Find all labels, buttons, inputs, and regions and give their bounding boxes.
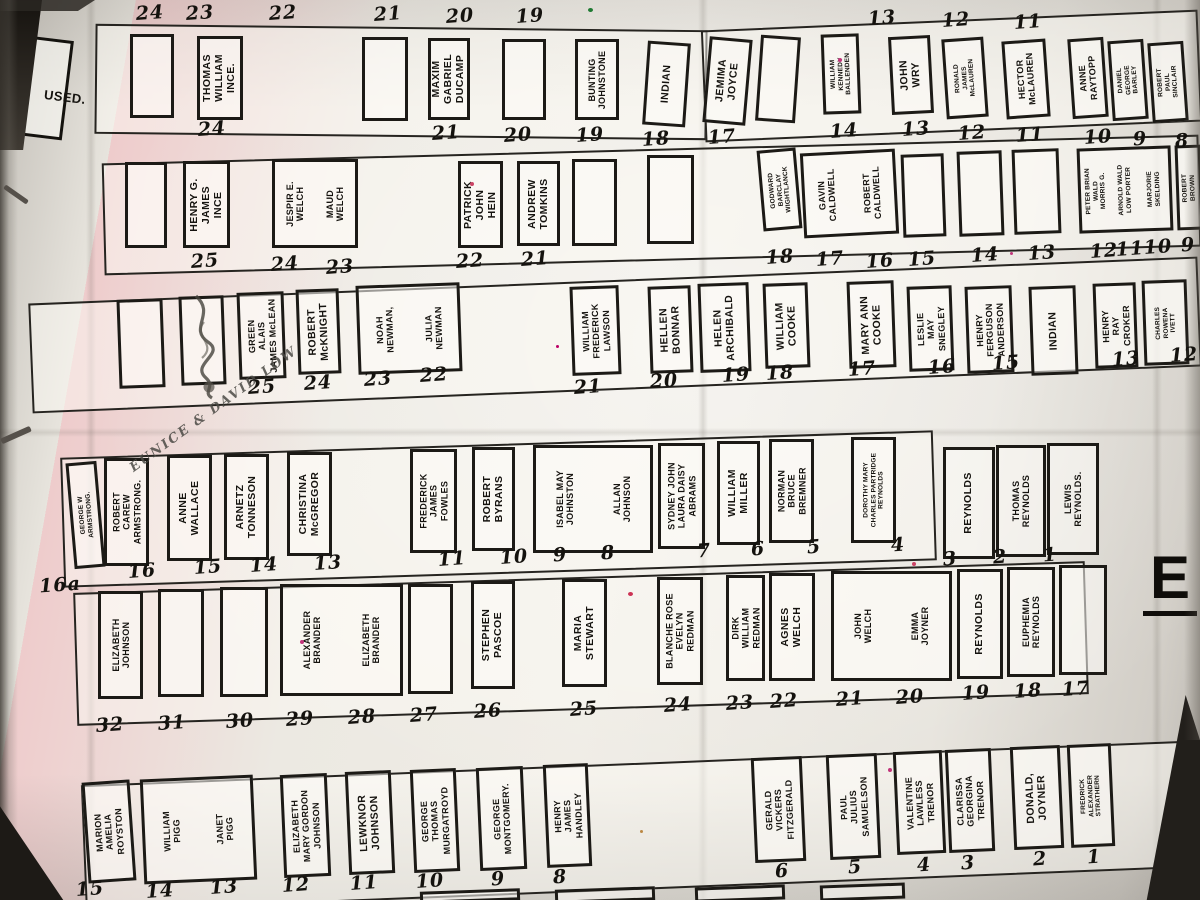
- speck: [300, 640, 304, 644]
- plot-number: 29: [285, 707, 315, 731]
- plot-name-line: TRENOR: [974, 780, 986, 820]
- plot-name: DOROTHY MARYCHARLES PARTRIDGEREYNOLDS: [862, 453, 885, 527]
- plot-name-line: ROBERT: [111, 492, 121, 532]
- plot-name: MARJORIESKELDING: [1146, 170, 1163, 206]
- plot-number: 21: [373, 2, 403, 26]
- plot-john-wry: JOHNWRY: [888, 35, 934, 115]
- plot-name: VALENTINELAWLESSTRENOR: [903, 775, 936, 829]
- plot-name: WILLIAMCOOKE: [774, 301, 800, 350]
- plot-number: 19: [575, 123, 605, 147]
- plot-name-line: FITZGERALD: [782, 779, 795, 839]
- plot-robert-mcknight: ROBERTMcKNIGHT: [296, 288, 342, 374]
- plot-name-line: LAWSON: [600, 309, 612, 351]
- plot-name-line: INDIAN: [1047, 311, 1060, 350]
- plot-name-line: McLAUREN: [968, 58, 978, 96]
- plot-name-line: FOWLES: [439, 481, 449, 521]
- plot-name-rotator: VALENTINELAWLESSTRENOR: [903, 775, 936, 829]
- plot-name-line: JOHNSON: [121, 622, 131, 669]
- plot-number: 19: [961, 681, 991, 705]
- plot-name-line: DOROTHY MARY: [862, 462, 870, 518]
- plot-name: DONALD,JOYNER: [1024, 772, 1050, 824]
- plot-number: 9: [490, 868, 506, 891]
- plot-name-rotator: HECTORMcLAUREN: [1014, 52, 1038, 106]
- plot-empty: [572, 159, 617, 246]
- plot-name-line: WELCH: [295, 186, 305, 221]
- plot-alexander-brander-elizabeth-brander: ALEXANDERBRANDERELIZABETHBRANDER: [280, 584, 403, 696]
- plot-name-rotator: MARIONAMELIAROYSTON: [92, 807, 126, 855]
- plot-name: THOMASREYNOLDS: [1011, 475, 1032, 527]
- plot-number: 14: [249, 553, 279, 577]
- speck: [640, 830, 643, 833]
- plot-name-rotator: NORMANBRUCEBREMNER: [776, 467, 807, 515]
- plot-name: SYDNEY JOHNLAURA DAISYABRAMS: [666, 462, 697, 530]
- plot-name-rotator: EUPHEMIAREYNOLDS: [1021, 596, 1042, 648]
- plot-number: 25: [569, 697, 599, 721]
- plot-number: 9: [1180, 234, 1196, 257]
- plot-name-line: WALLACE: [190, 481, 202, 536]
- plot-number: 8: [600, 542, 616, 565]
- plot-number: 10: [415, 869, 445, 893]
- plot-number: 31: [157, 711, 187, 735]
- plot-number: 14: [829, 119, 859, 143]
- plot-name-rotator: DOROTHY MARYCHARLES PARTRIDGEREYNOLDS: [862, 453, 885, 527]
- plot-number: 19: [515, 4, 545, 28]
- plot-jemima-joyce: JEMIMAJOYCE: [702, 36, 752, 125]
- plot-name: MAXIMGABRIELDUCAMP: [431, 54, 467, 104]
- plot-name: GODWARDBARCLAYWIGHTLANCK: [766, 165, 793, 213]
- plot-henry-james-handley: HENRYJAMESHANDLEY: [543, 763, 592, 868]
- plot-number: 17: [1061, 677, 1091, 701]
- plot-name-rotator: MAXIMGABRIELDUCAMP: [431, 54, 467, 104]
- plot-name-rotator: HELLENBONNAR: [658, 305, 684, 354]
- used-label-rotator: USED.: [43, 88, 86, 108]
- plot-dirk-william-redman: DIRKWILLIAMREDMAN: [726, 575, 765, 681]
- plot-name-line: JAMES: [201, 185, 213, 223]
- plot-name-line: RAYTOPP: [1086, 55, 1099, 100]
- plot-name-rotator: WILLIAMFREDERICKLAWSON: [579, 302, 612, 358]
- plot-name-line: REYNOLDS: [963, 472, 975, 534]
- shadow-right-edge: [1184, 0, 1200, 740]
- plot-name-line: JOHNSON: [369, 795, 383, 850]
- plot-number: 15: [907, 247, 937, 271]
- plot-number: 16: [865, 249, 895, 273]
- plot-bunting-johnstone: BUNTINGJOHNSTONE: [575, 39, 619, 120]
- plot-name-line: INDIAN: [659, 64, 674, 103]
- plot-name-rotator: CLARISSAGEORGINATRENOR: [954, 774, 987, 827]
- speck: [1010, 252, 1013, 255]
- plot-name-line: BRANDER: [371, 616, 381, 663]
- plot-number: 15: [991, 351, 1021, 375]
- plot-name: ROBERTBYRANS: [482, 476, 506, 523]
- plot-arnetz-tonneson: ARNETZTONNESON: [224, 454, 269, 560]
- plot-number: 23: [325, 255, 355, 279]
- plot-name-line: BLANCHE ROSE: [665, 593, 675, 669]
- plot-daniel-george-barley: DANIELGEORGEBARLEY: [1107, 39, 1148, 121]
- plot-name-rotator: JOHNWELCH: [853, 609, 874, 644]
- plot-name-line: REYNOLDS: [877, 471, 885, 509]
- plot-name: ROBERTCALDWELL: [860, 165, 883, 219]
- plot-empty: [158, 589, 204, 697]
- plot-number: 2: [992, 546, 1008, 569]
- plot-name-rotator: FREDRICKALEXANDERSTRATHERN: [1079, 774, 1104, 817]
- plot-name-line: TRENOR: [924, 782, 936, 822]
- plot-name-line: FREDERICK: [418, 473, 428, 528]
- plot-name-line: COOKE: [871, 304, 884, 345]
- plot-name-line: ARCHIBALD: [723, 294, 737, 360]
- plot-name-line: JULIUS: [848, 789, 860, 823]
- plot-name-line: CHRISTINA: [298, 474, 310, 535]
- plot-maxim-gabriel-ducamp: MAXIMGABRIELDUCAMP: [428, 38, 470, 120]
- plot-name-rotator: SYDNEY JOHNLAURA DAISYABRAMS: [666, 462, 697, 530]
- plot-name-line: NEWMAN: [433, 306, 445, 350]
- plot-name-rotator: ALLANJOHNSON: [611, 476, 632, 523]
- plot-name-rotator: RONALDJAMESMcLAUREN: [952, 58, 978, 97]
- plot-number: 6: [774, 860, 790, 883]
- plot-name: JULIANEWMAN: [422, 306, 444, 350]
- plot-name-rotator: GERALDVICKERSFITZGERALD: [762, 779, 795, 840]
- plot-lewis-reynolds: LEWISREYNOLDS.: [1047, 443, 1099, 555]
- plot-norman-bruce-bremner: NORMANBRUCEBREMNER: [769, 439, 814, 543]
- plot-number: 11: [1015, 123, 1045, 147]
- plot-name-line: MILLER: [739, 472, 751, 513]
- plot-name-rotator: GEORGETHOMASMURGATROYD: [418, 786, 452, 855]
- plot-number: 27: [409, 703, 439, 727]
- plot-name-rotator: HENRYJAMESHANDLEY: [551, 792, 584, 839]
- cemetery-plot-map-photo: THOMASWILLIAMINCE.MAXIMGABRIELDUCAMPBUNT…: [0, 0, 1200, 900]
- plot-name: BUNTINGJOHNSTONE: [587, 50, 608, 109]
- plot-empty: [408, 584, 453, 694]
- plot-number: 3: [960, 852, 976, 875]
- plot-name-rotator: LEWKNORJOHNSON: [357, 793, 383, 851]
- plot-clarissa-georgina-trenor: CLARISSAGEORGINATRENOR: [945, 748, 995, 853]
- plot-name-rotator: GEORGEMONTGOMERY.: [490, 783, 514, 855]
- speck: [912, 562, 916, 566]
- plot-name-line: EMMA: [910, 612, 920, 641]
- speck: [588, 8, 593, 12]
- plot-william-pigg-janet-pigg: WILLIAMPIGGJANETPIGG: [140, 775, 257, 885]
- plot-name-line: WILLIAM: [740, 608, 750, 649]
- plot-name: GEORGE WARMSTRONG.: [76, 491, 95, 539]
- map-layer: THOMASWILLIAMINCE.MAXIMGABRIELDUCAMPBUNT…: [0, 0, 1200, 900]
- plot-number: 22: [419, 363, 449, 387]
- plot-indian: INDIAN: [1028, 285, 1078, 376]
- plot-name-line: WILLIAM: [161, 810, 173, 851]
- plot-name-line: CAREW: [121, 494, 131, 530]
- plot-william-cooke: WILLIAMCOOKE: [763, 282, 811, 369]
- plot-number: 13: [1027, 241, 1057, 265]
- speck: [556, 345, 559, 348]
- plot-name-line: DUCAMP: [455, 55, 467, 103]
- plot-name-line: GREEN: [246, 319, 257, 353]
- plot-name-rotator: REYNOLDS: [963, 472, 975, 534]
- plot-name-line: SNEGLEY: [935, 305, 947, 350]
- plot-name-line: BYRANS: [494, 476, 506, 523]
- plot-name-line: IVETT: [1169, 312, 1177, 332]
- plot-number: 16: [927, 355, 957, 379]
- plot-name: DIRKWILLIAMREDMAN: [730, 607, 761, 648]
- used-label: USED.: [43, 88, 86, 108]
- plot-name-line: REYNOLDS: [974, 593, 986, 655]
- plot-name: BLANCHE ROSEEVELYNREDMAN: [665, 593, 696, 669]
- plot-name: CHARLESROWENAIVETT: [1153, 306, 1177, 340]
- plot-name: REYNOLDS: [963, 472, 975, 534]
- plot-number: 20: [445, 4, 475, 28]
- plot-name-line: JOHNSTON: [565, 473, 575, 525]
- plot-name: FREDRICKALEXANDERSTRATHERN: [1079, 774, 1104, 817]
- plot-number: 10: [499, 545, 529, 569]
- plot-william-miller: WILLIAMMILLER: [717, 441, 760, 545]
- plot-name: LEWKNORJOHNSON: [357, 793, 383, 851]
- plot-number: 21: [573, 375, 603, 399]
- plot-name-line: CALDWELL: [826, 168, 839, 221]
- scribble-mark: [182, 292, 240, 400]
- plot-name-rotator: ALEXANDERBRANDER: [302, 611, 323, 670]
- plot-hector-mclauren: HECTORMcLAUREN: [1001, 39, 1050, 120]
- plot-name-line: STEWART: [585, 606, 597, 660]
- plot-name-rotator: BUNTINGJOHNSTONE: [587, 50, 608, 109]
- plot-name-rotator: WILLIAMPIGG: [161, 810, 183, 851]
- plot-name-line: NORMAN: [776, 470, 786, 512]
- plot-number: 2: [1032, 848, 1048, 871]
- plot-name-rotator: DIRKWILLIAMREDMAN: [730, 607, 761, 648]
- plot-name-rotator: BLANCHE ROSEEVELYNREDMAN: [665, 593, 696, 669]
- plot-number: 14: [970, 243, 1000, 267]
- plot-name: WILLIAMFREDERICKLAWSON: [579, 302, 612, 358]
- plot-name-line: SYDNEY JOHN: [666, 462, 676, 530]
- plot-name-line: PIGG: [225, 816, 236, 840]
- plot-thomas-william-ince: THOMASWILLIAMINCE.: [197, 36, 243, 120]
- plot-name-line: JAMES: [562, 799, 574, 832]
- plot-name: HENRY G.JAMESINCE: [189, 178, 225, 231]
- plot-name: INDIAN: [1047, 311, 1060, 350]
- plot-fredrick-alexander-strathern: FREDRICKALEXANDERSTRATHERN: [1067, 743, 1115, 848]
- plot-name-rotator: THOMASREYNOLDS: [1011, 475, 1032, 527]
- plot-name-rotator: MAUDWELCH: [325, 186, 346, 221]
- speck: [888, 768, 892, 772]
- plot-name-line: THOMAS: [1011, 481, 1021, 522]
- speck: [470, 182, 474, 186]
- plot-name-line: LOW PORTER: [1124, 166, 1133, 212]
- plot-name: MARIONAMELIAROYSTON: [92, 807, 126, 855]
- plot-name-line: PAUL: [838, 794, 849, 819]
- plot-name-line: HANDLEY: [572, 792, 584, 838]
- plot-number: 21: [431, 121, 461, 145]
- plot-number: 13: [209, 875, 239, 899]
- plot-name-line: MONTGOMERY.: [500, 783, 513, 854]
- plot-number: 7: [696, 540, 712, 563]
- plot-name: GERALDVICKERSFITZGERALD: [762, 779, 795, 840]
- plot-maria-stewart: MARIASTEWART: [562, 579, 607, 687]
- plot-name-line: CHARLES PARTRIDGE: [870, 453, 878, 527]
- plot-number: 12: [281, 873, 311, 897]
- plot-name-line: ANDREW: [527, 179, 539, 229]
- plot-name-rotator: ROBERTBYRANS: [482, 476, 506, 523]
- plot-number: 4: [916, 854, 932, 877]
- plot-name: REYNOLDS: [974, 593, 986, 655]
- plot-name-line: REDMAN: [685, 610, 695, 651]
- plot-name-line: CALDWELL: [870, 165, 883, 218]
- plot-name-line: REDMAN: [751, 607, 761, 648]
- plot-name: ROBERTCAREWARMSTRONG.: [111, 480, 142, 545]
- plot-name-line: CROKER: [1120, 305, 1132, 346]
- plot-name: PETER BRIANWALDMORRIS G.: [1083, 167, 1108, 214]
- plot-marion-amelia-royston: MARIONAMELIAROYSTON: [82, 779, 137, 883]
- plot-name-rotator: CHRISTINAMcGREGOR: [298, 472, 322, 536]
- plot-jespir-e-welch-maud-welch: JESPIR E.WELCHMAUDWELCH: [272, 159, 358, 248]
- shadow-left-edge: [0, 0, 18, 900]
- plot-name-line: JOYNER: [1036, 774, 1050, 820]
- plot-name-line: LAURA DAISY: [676, 464, 686, 528]
- plot-name-line: ARNETZ: [235, 485, 247, 530]
- plot-number: 22: [268, 1, 298, 25]
- plot-stephen-pascoe: STEPHENPASCOE: [471, 581, 515, 689]
- plot-name-line: ABRAMS: [687, 475, 697, 516]
- plot-number: 5: [806, 536, 822, 559]
- plot-number: 8: [1174, 130, 1190, 153]
- plot-name-line: MAUD: [325, 189, 335, 217]
- plot-number: 23: [725, 691, 755, 715]
- plot-name-line: JOYNER: [920, 607, 930, 646]
- plot-name-rotator: GEORGE WARMSTRONG.: [76, 491, 95, 539]
- plot-name-line: RAY: [1110, 316, 1121, 335]
- plot-name-line: HENRY: [551, 799, 563, 832]
- plot-name-line: HENRY: [974, 313, 985, 346]
- plot-empty: [125, 162, 167, 248]
- plot-name-rotator: ANNEWALLACE: [178, 481, 202, 536]
- plot-name: DANIELGEORGEBARLEY: [1116, 64, 1141, 95]
- plot-name-line: JULIA: [423, 314, 434, 342]
- plot-name: ELIZABETHBRANDER: [361, 613, 382, 666]
- plot-frederick-james-fowles: FREDERICKJAMESFOWLES: [410, 449, 457, 553]
- plot-name-rotator: JEMIMAJOYCE: [714, 58, 742, 103]
- plot-name-rotator: GODWARDBARCLAYWIGHTLANCK: [766, 165, 793, 213]
- plot-number: 25: [247, 375, 277, 399]
- plot-name-rotator: HELENARCHIBALD: [711, 294, 737, 361]
- plot-number: 24: [197, 117, 227, 141]
- plot-name-rotator: ELIZABETHMARY GORDONJOHNSON: [289, 789, 323, 863]
- plot-number: 6: [750, 538, 766, 561]
- plot-donald-joyner: DONALD,JOYNER: [1010, 745, 1064, 850]
- plot-name: JEMIMAJOYCE: [714, 58, 742, 103]
- plot-name-rotator: LESLIEMAYSNEGLEY: [914, 305, 946, 351]
- plot-name-line: BUNTING: [587, 58, 597, 101]
- plot-name-rotator: WILLIAMCOOKE: [774, 301, 800, 350]
- plot-indian: INDIAN: [642, 41, 691, 128]
- plot-number: 11: [1115, 237, 1145, 261]
- plot-number: 13: [1111, 347, 1141, 371]
- speck: [838, 58, 842, 62]
- plot-name: MAUDWELCH: [325, 186, 346, 221]
- plot-number: 19: [721, 363, 751, 387]
- plot-name-line: WELCH: [335, 186, 345, 221]
- plot-name: NORMANBRUCEBREMNER: [776, 467, 807, 515]
- plot-name: JANETPIGG: [214, 812, 236, 844]
- plot-number: 16: [127, 559, 157, 583]
- plot-isabel-may-johnston-allan-johnson: ISABEL MAYJOHNSTONALLANJOHNSON: [533, 445, 653, 553]
- plot-name: GEORGETHOMASMURGATROYD: [418, 786, 452, 855]
- plot-name-line: WILLIAM: [579, 310, 591, 351]
- plot-name-rotator: HENRYRAYCROKER: [1099, 305, 1131, 347]
- plot-number: 15: [193, 555, 223, 579]
- plot-number: 21: [520, 247, 550, 271]
- plot-noah-newman-julia-newman: NOAHNEWMAN,JULIANEWMAN: [355, 282, 462, 375]
- plot-name-rotator: ANDREWTOMKINS: [527, 178, 551, 229]
- plot-number: 13: [867, 6, 897, 30]
- plot-peter-brian-wald-morris-g-arnold-wald-low-porter-marjorie-skelding: PETER BRIANWALDMORRIS G.ARNOLD WALDLOW P…: [1077, 145, 1174, 233]
- plot-name-line: COOKE: [786, 305, 799, 346]
- plot-number: 24: [663, 693, 693, 717]
- plot-name-rotator: CHARLESROWENAIVETT: [1153, 306, 1177, 340]
- plot-george-montgomery: GEORGEMONTGOMERY.: [476, 766, 527, 871]
- plot-name-rotator: DONALD,JOYNER: [1024, 772, 1050, 824]
- plot-name-rotator: ROBERTMcKNIGHT: [306, 302, 332, 361]
- plot-dorothy-mary-charles-partridge-reynolds: DOROTHY MARYCHARLES PARTRIDGEREYNOLDS: [851, 437, 896, 543]
- plot-name-rotator: MARY ANNCOOKE: [859, 295, 885, 355]
- plot-name-line: WILLIAM: [727, 469, 739, 517]
- plot-godward-barclay-wightlanck: GODWARDBARCLAYWIGHTLANCK: [757, 147, 803, 231]
- plot-hellen-bonnar: HELLENBONNAR: [647, 285, 693, 373]
- plot-name: GEORGEMONTGOMERY.: [490, 783, 514, 855]
- plot-name-line: SKELDING: [1154, 171, 1163, 206]
- plot-name-rotator: INDIAN: [1047, 311, 1060, 350]
- plot-name-line: TONNESON: [247, 476, 259, 539]
- plot-name-line: SINCLAIR: [1171, 65, 1181, 98]
- plot-number: 4: [890, 534, 906, 557]
- plot-name-rotator: PATRICKJOHNHEIN: [463, 181, 499, 229]
- plot-name-line: JOYCE: [726, 62, 741, 101]
- plot-name-line: WELCH: [863, 609, 873, 644]
- plot-name-rotator: JOHNWRY: [898, 59, 924, 91]
- plot-name-line: MORRIS G.: [1099, 172, 1108, 209]
- plot-empty: [695, 884, 785, 900]
- plot-name-rotator: REYNOLDS: [974, 593, 986, 655]
- plot-empty: [957, 150, 1005, 237]
- plot-number: 16a: [38, 573, 81, 598]
- plot-name-line: MAY: [925, 318, 936, 338]
- plot-name-line: PIGG: [171, 818, 182, 842]
- plot-name-rotator: ISABEL MAYJOHNSTON: [554, 470, 575, 528]
- plot-andrew-tomkins: ANDREWTOMKINS: [517, 161, 560, 246]
- plot-blanche-rose-evelyn-redman: BLANCHE ROSEEVELYNREDMAN: [657, 577, 703, 685]
- plot-name-line: ELIZABETH: [361, 613, 371, 666]
- plot-number: 20: [503, 123, 533, 147]
- plot-name-line: McGREGOR: [310, 472, 322, 536]
- plot-mary-ann-cooke: MARY ANNCOOKE: [846, 280, 896, 369]
- plot-name-line: BRANDER: [312, 616, 322, 663]
- plot-reynolds: REYNOLDS: [943, 447, 995, 559]
- plot-number: 17: [707, 125, 737, 149]
- plot-number: 18: [765, 361, 795, 385]
- plot-name: JOHNWRY: [898, 59, 924, 91]
- plot-empty: [1012, 148, 1062, 235]
- plot-name-line: ALAIS: [256, 321, 267, 350]
- plot-number: 3: [942, 548, 958, 571]
- plot-patrick-john-hein: PATRICKJOHNHEIN: [458, 161, 503, 248]
- plot-name-line: ISABEL MAY: [554, 470, 564, 528]
- plot-name-line: JOHNSTONE: [597, 50, 607, 109]
- plot-number: 10: [1143, 235, 1173, 259]
- plot-name: FREDERICKJAMESFOWLES: [418, 473, 449, 528]
- plot-empty: [647, 155, 694, 244]
- plot-number: 11: [437, 547, 467, 571]
- plot-name-line: SAMUELSON: [857, 776, 870, 837]
- plot-reynolds: REYNOLDS: [957, 569, 1003, 679]
- plot-name-line: ALLAN: [611, 483, 621, 515]
- plot-name-line: JESPIR E.: [285, 181, 295, 227]
- plot-name: ALEXANDERBRANDER: [302, 611, 323, 670]
- plot-valentine-lawless-trenor: VALENTINELAWLESSTRENOR: [893, 750, 946, 855]
- plot-name: EUPHEMIAREYNOLDS: [1021, 596, 1042, 648]
